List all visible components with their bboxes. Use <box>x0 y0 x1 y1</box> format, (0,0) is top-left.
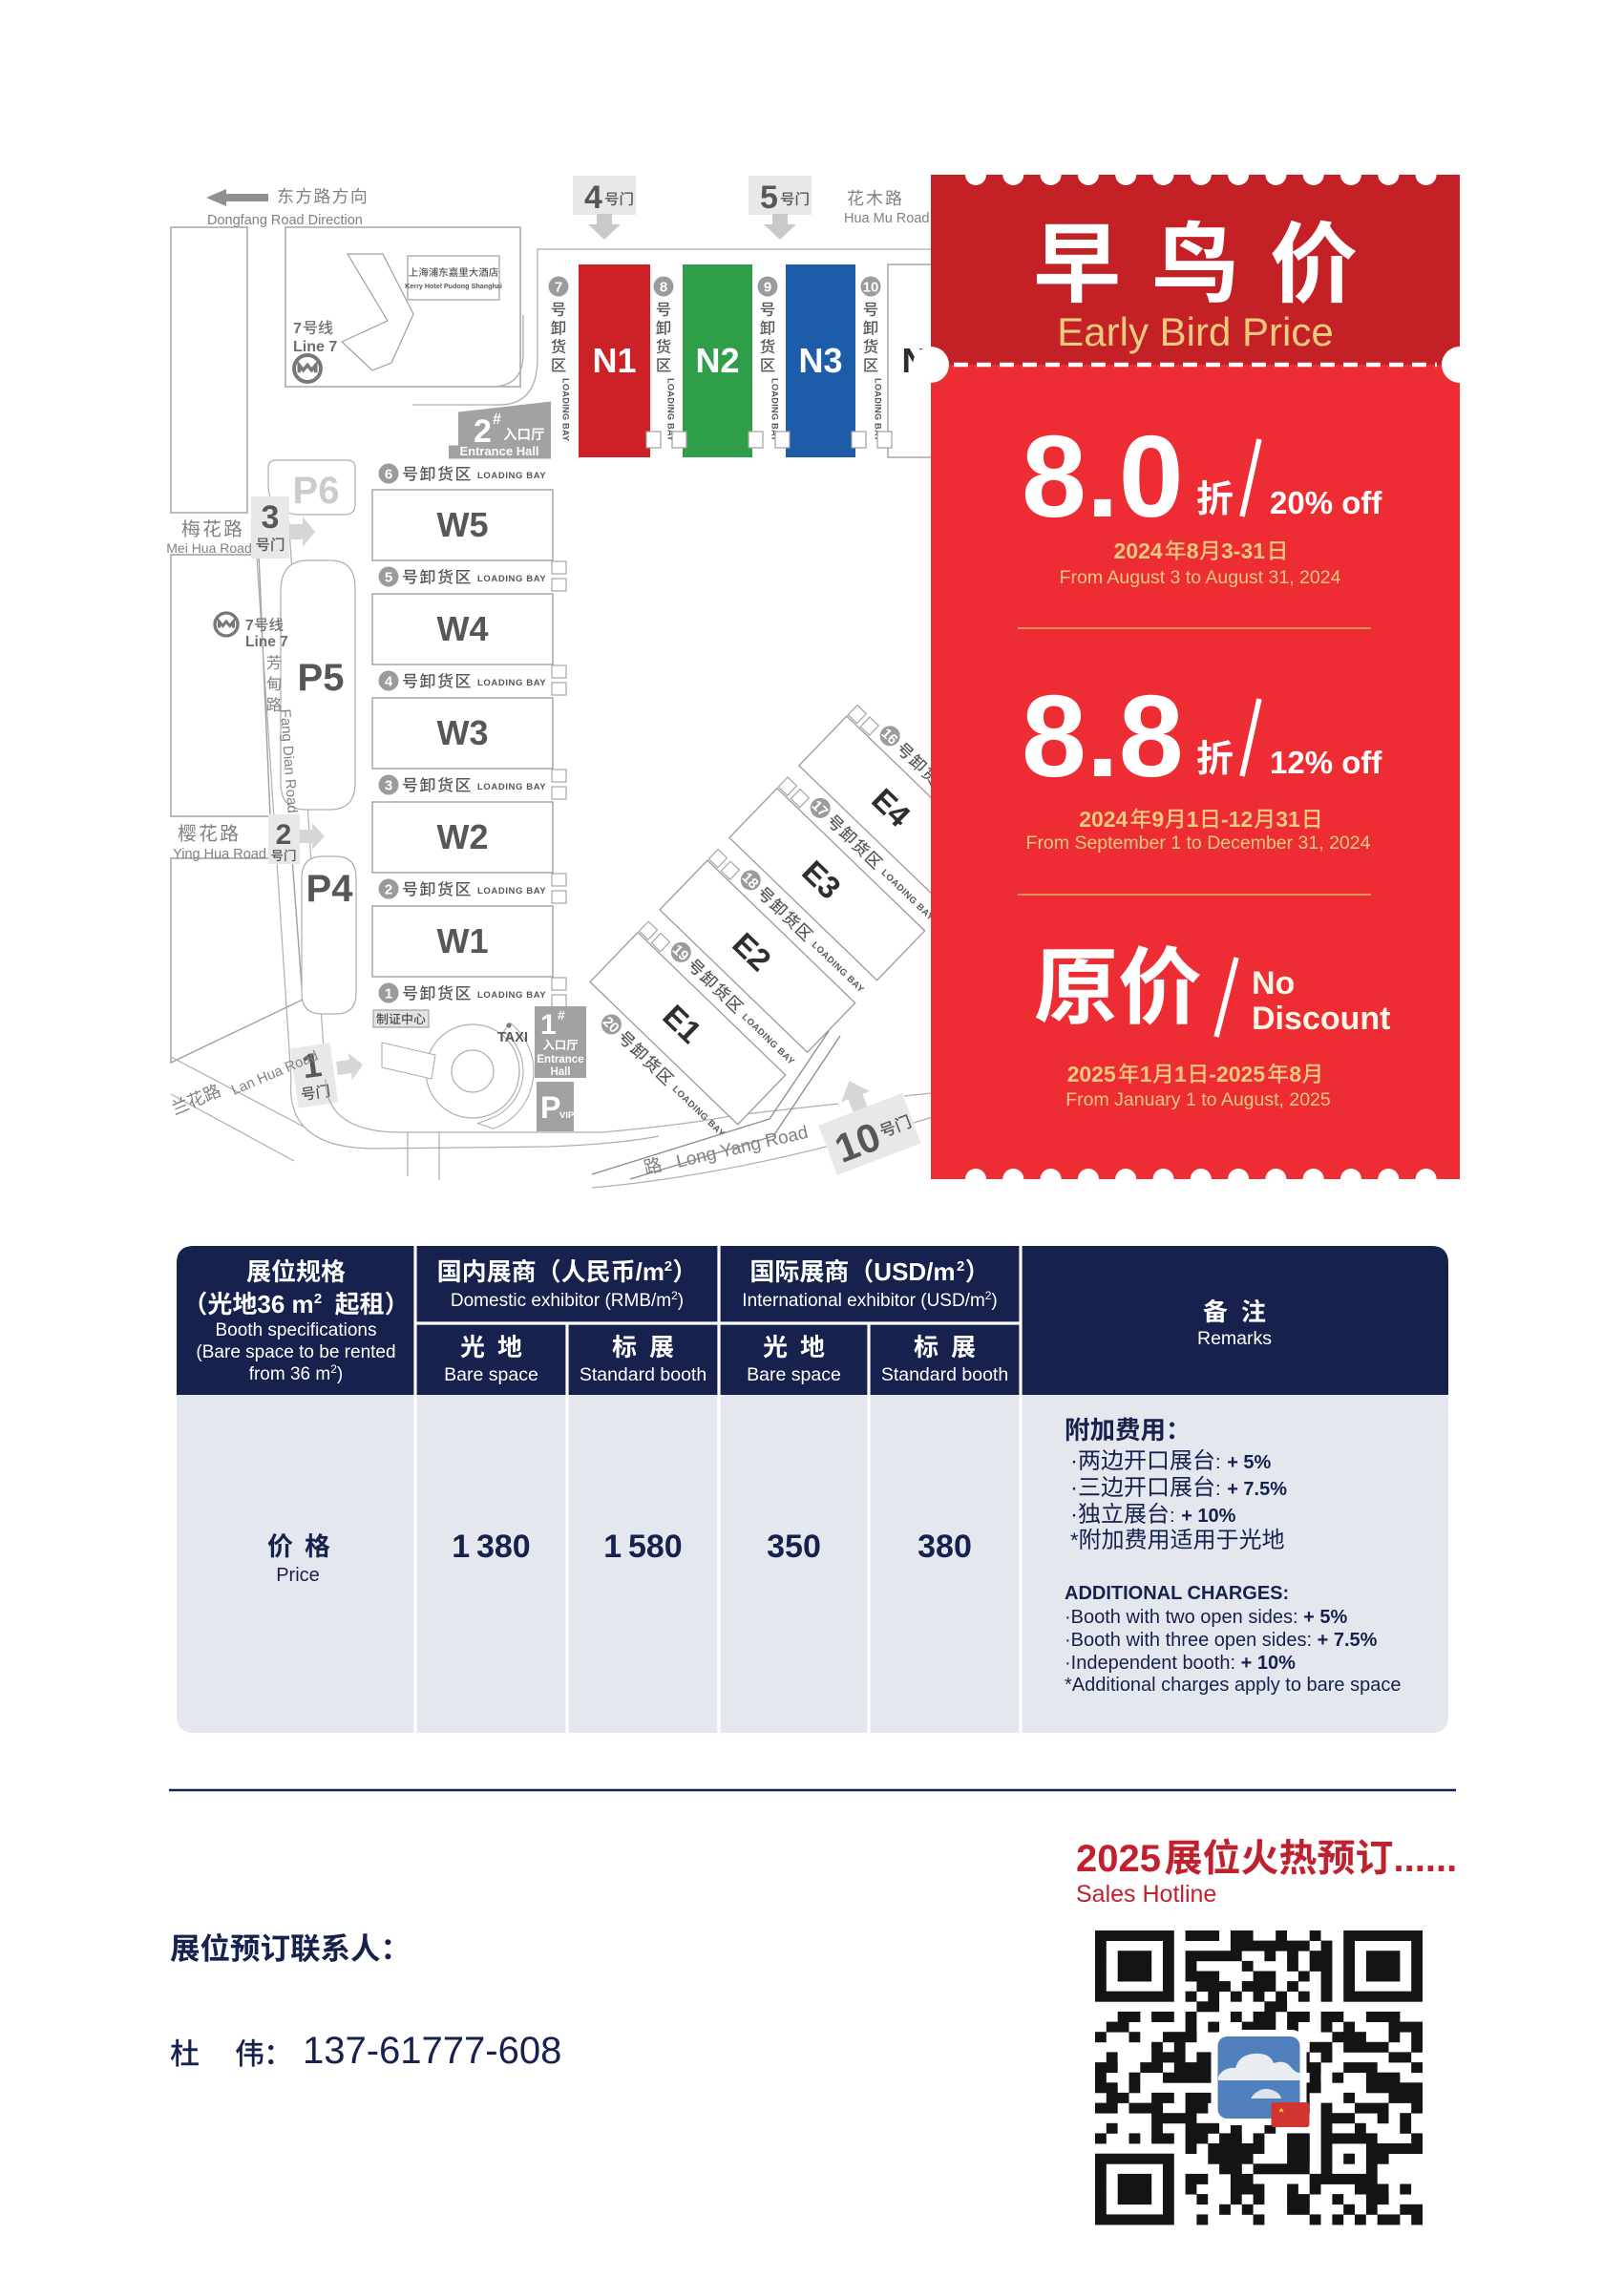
svg-text::: : <box>1215 1479 1221 1500</box>
svg-text:2025: 2025 <box>1076 1838 1161 1880</box>
svg-text:3: 3 <box>262 499 280 536</box>
svg-text:6: 6 <box>385 467 392 483</box>
svg-text:3-31: 3-31 <box>1221 538 1265 563</box>
svg-text:+ 10%: + 10% <box>1181 1506 1235 1527</box>
svg-text:Ying Hua Road: Ying Hua Road <box>173 847 266 862</box>
svg-text:Line 7: Line 7 <box>293 339 337 355</box>
svg-text:LOADING BAY: LOADING BAY <box>477 471 546 481</box>
svg-text:1: 1 <box>540 1009 557 1041</box>
svg-text:P4: P4 <box>306 868 354 910</box>
svg-text:from 36 m: from 36 m <box>249 1364 331 1384</box>
svg-text:31: 31 <box>1276 807 1300 832</box>
svg-text:*Additional charges apply to b: *Additional charges apply to bare space <box>1065 1675 1401 1696</box>
svg-text:VIP: VIP <box>559 1110 575 1121</box>
svg-text:20% off: 20% off <box>1270 485 1382 520</box>
svg-text:Hua Mu Road: Hua Mu Road <box>844 211 929 226</box>
svg-text:380: 380 <box>917 1529 972 1565</box>
svg-text:Entrance: Entrance <box>537 1054 583 1065</box>
svg-text:Kerry Hotel Pudong Shanghai: Kerry Hotel Pudong Shanghai <box>405 282 502 290</box>
svg-text:From September 1 to December 3: From September 1 to December 31, 2024 <box>1026 833 1371 854</box>
svg-text:LOADING BAY: LOADING BAY <box>477 782 546 792</box>
svg-text:2: 2 <box>664 1258 672 1275</box>
svg-text:2: 2 <box>385 882 392 898</box>
svg-text:Booth specifications: Booth specifications <box>216 1320 377 1340</box>
svg-text:ADDITIONAL CHARGES:: ADDITIONAL CHARGES: <box>1065 1583 1289 1604</box>
svg-text:8.8: 8.8 <box>1022 671 1184 801</box>
svg-text:): ) <box>991 1291 997 1311</box>
svg-text:12% off: 12% off <box>1270 745 1382 780</box>
svg-text:2: 2 <box>276 819 292 851</box>
svg-text:-2025: -2025 <box>1209 1062 1265 1086</box>
svg-text:W1: W1 <box>437 921 489 960</box>
svg-text:): ) <box>337 1364 343 1384</box>
svg-text:1 380: 1 380 <box>452 1529 530 1565</box>
svg-text:·Booth with three open sides:: ·Booth with three open sides: + 7.5% <box>1065 1630 1378 1651</box>
svg-text:4: 4 <box>584 179 602 216</box>
svg-text:10: 10 <box>863 280 879 296</box>
svg-text:·: · <box>1070 1475 1078 1501</box>
svg-text:36 m: 36 m <box>257 1290 313 1318</box>
svg-text:3: 3 <box>385 778 392 794</box>
svg-text:7: 7 <box>245 618 254 634</box>
svg-text:1: 1 <box>1187 807 1199 832</box>
svg-text:LOADING BAY: LOADING BAY <box>477 886 546 896</box>
svg-text:W3: W3 <box>437 713 489 752</box>
svg-text:Price: Price <box>276 1565 320 1586</box>
svg-text:2: 2 <box>314 1291 322 1307</box>
svg-text:Entrance Hall: Entrance Hall <box>459 444 538 458</box>
svg-text:LOADING BAY: LOADING BAY <box>477 678 546 688</box>
svg-text:2024: 2024 <box>1079 807 1128 832</box>
svg-text:From August 3 to August 31, 20: From August 3 to August 31, 2024 <box>1060 567 1341 588</box>
svg-text:N3: N3 <box>798 341 842 380</box>
svg-text:TAXI: TAXI <box>497 1030 528 1045</box>
svg-text:9: 9 <box>764 280 771 296</box>
svg-text:1: 1 <box>385 986 392 1002</box>
svg-text:1: 1 <box>1174 1062 1187 1086</box>
svg-text:8: 8 <box>1289 1062 1301 1086</box>
svg-text:P5: P5 <box>298 657 345 699</box>
svg-text:W4: W4 <box>437 609 489 648</box>
svg-text:LOADING BAY: LOADING BAY <box>477 574 546 584</box>
svg-text:From January 1 to August, 2025: From January 1 to August, 2025 <box>1065 1089 1331 1110</box>
svg-text:/m: /m <box>636 1257 664 1286</box>
svg-text:5: 5 <box>385 570 392 586</box>
svg-text:P: P <box>540 1090 560 1125</box>
svg-text:International exhibitor (USD/m: International exhibitor (USD/m <box>742 1291 985 1311</box>
svg-text:W5: W5 <box>437 505 489 544</box>
svg-text:1 580: 1 580 <box>603 1529 682 1565</box>
svg-text:2: 2 <box>957 1258 964 1275</box>
svg-text:Domestic exhibitor (RMB/m: Domestic exhibitor (RMB/m <box>451 1291 671 1311</box>
svg-text:Sales Hotline: Sales Hotline <box>1076 1881 1216 1908</box>
svg-text:No: No <box>1252 965 1295 1002</box>
svg-text:Dongfang Road Direction: Dongfang Road Direction <box>207 213 363 228</box>
svg-text:2025: 2025 <box>1067 1062 1116 1086</box>
svg-text:8.0: 8.0 <box>1022 411 1184 541</box>
svg-text:Line 7: Line 7 <box>245 634 288 650</box>
svg-text:(Bare space to be rented: (Bare space to be rented <box>196 1342 395 1362</box>
svg-text:9: 9 <box>1151 807 1164 832</box>
svg-text:W2: W2 <box>437 817 489 856</box>
svg-text:N2: N2 <box>695 341 739 380</box>
svg-text:4: 4 <box>385 674 393 690</box>
svg-text:8: 8 <box>660 280 667 296</box>
svg-text:......: ...... <box>1394 1838 1458 1880</box>
svg-text:+ 5%: + 5% <box>1227 1452 1271 1473</box>
svg-text:Standard booth: Standard booth <box>881 1364 1008 1385</box>
svg-text:Bare space: Bare space <box>747 1364 841 1385</box>
svg-text:·Booth with two open sides: +: ·Booth with two open sides: + 5% <box>1065 1607 1348 1628</box>
svg-text:LOADING BAY: LOADING BAY <box>561 378 571 442</box>
svg-text:Discount: Discount <box>1252 1001 1390 1037</box>
svg-text:7: 7 <box>293 321 302 337</box>
svg-text:Remarks: Remarks <box>1197 1328 1272 1349</box>
svg-text:): ) <box>678 1291 684 1311</box>
svg-text:Hall: Hall <box>550 1066 570 1078</box>
svg-text:·: · <box>1070 1502 1078 1528</box>
svg-text:7: 7 <box>555 280 562 296</box>
svg-text:USD/m: USD/m <box>874 1257 955 1286</box>
svg-text:5: 5 <box>760 179 778 216</box>
svg-text:1: 1 <box>1140 1062 1152 1086</box>
svg-text:Standard booth: Standard booth <box>580 1364 707 1385</box>
svg-text:LOADING BAY: LOADING BAY <box>477 990 546 1001</box>
svg-text:P6: P6 <box>293 470 340 512</box>
svg-text:·Independent booth: + 10%: ·Independent booth: + 10% <box>1065 1653 1296 1674</box>
svg-text:Early Bird Price: Early Bird Price <box>1057 309 1333 354</box>
svg-text:#: # <box>493 411 501 428</box>
svg-text:+ 7.5%: + 7.5% <box>1227 1479 1287 1500</box>
svg-text:Bare space: Bare space <box>444 1364 538 1385</box>
svg-text:·: · <box>1070 1448 1078 1474</box>
svg-text::: : <box>1170 1506 1175 1527</box>
svg-text:Mei Hua Road: Mei Hua Road <box>166 540 252 556</box>
svg-text:8: 8 <box>1187 538 1199 563</box>
svg-text:2024: 2024 <box>1114 538 1163 563</box>
svg-text:#: # <box>558 1007 565 1023</box>
svg-text:350: 350 <box>767 1529 821 1565</box>
svg-text:137-61777-608: 137-61777-608 <box>303 2030 561 2072</box>
svg-text:*: * <box>1070 1529 1079 1552</box>
svg-text::: : <box>1215 1452 1221 1473</box>
svg-text:N1: N1 <box>592 341 636 380</box>
svg-text:-12: -12 <box>1221 807 1253 832</box>
